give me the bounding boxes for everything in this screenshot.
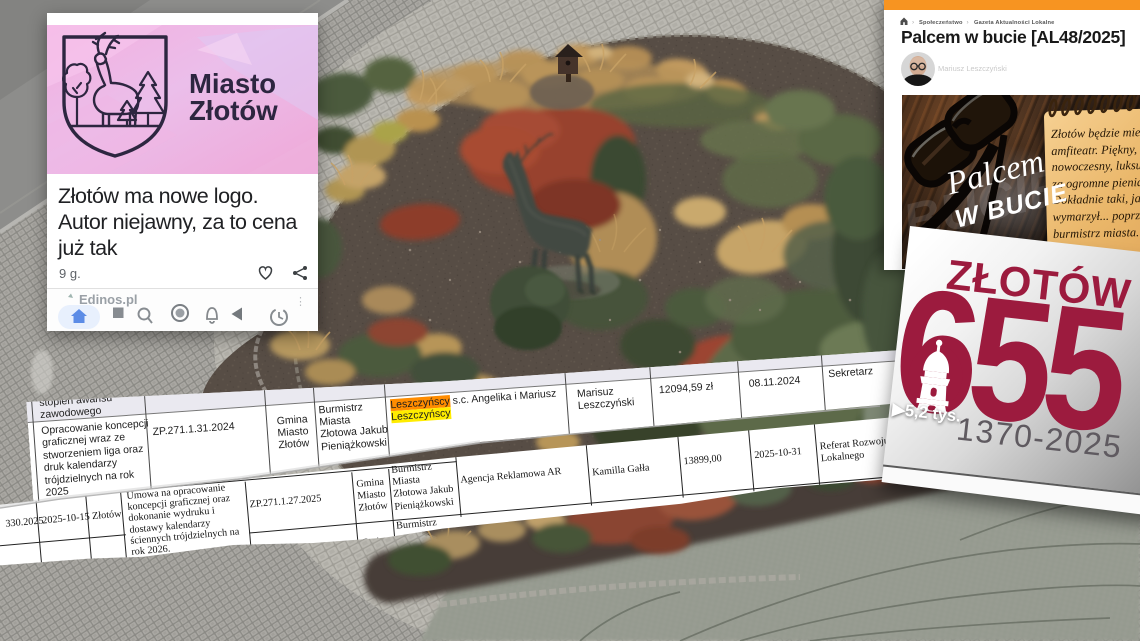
svg-text:Gazeta Aktualności Lokalne: Gazeta Aktualności Lokalne xyxy=(974,20,1055,26)
svg-text:›: › xyxy=(912,19,914,26)
svg-text:›: › xyxy=(967,19,969,26)
svg-text:Złotów: Złotów xyxy=(189,95,278,126)
svg-text:⋮: ⋮ xyxy=(295,296,306,308)
svg-text:Społeczeństwo: Społeczeństwo xyxy=(919,20,963,26)
svg-text:Edinos.pl: Edinos.pl xyxy=(79,292,138,307)
